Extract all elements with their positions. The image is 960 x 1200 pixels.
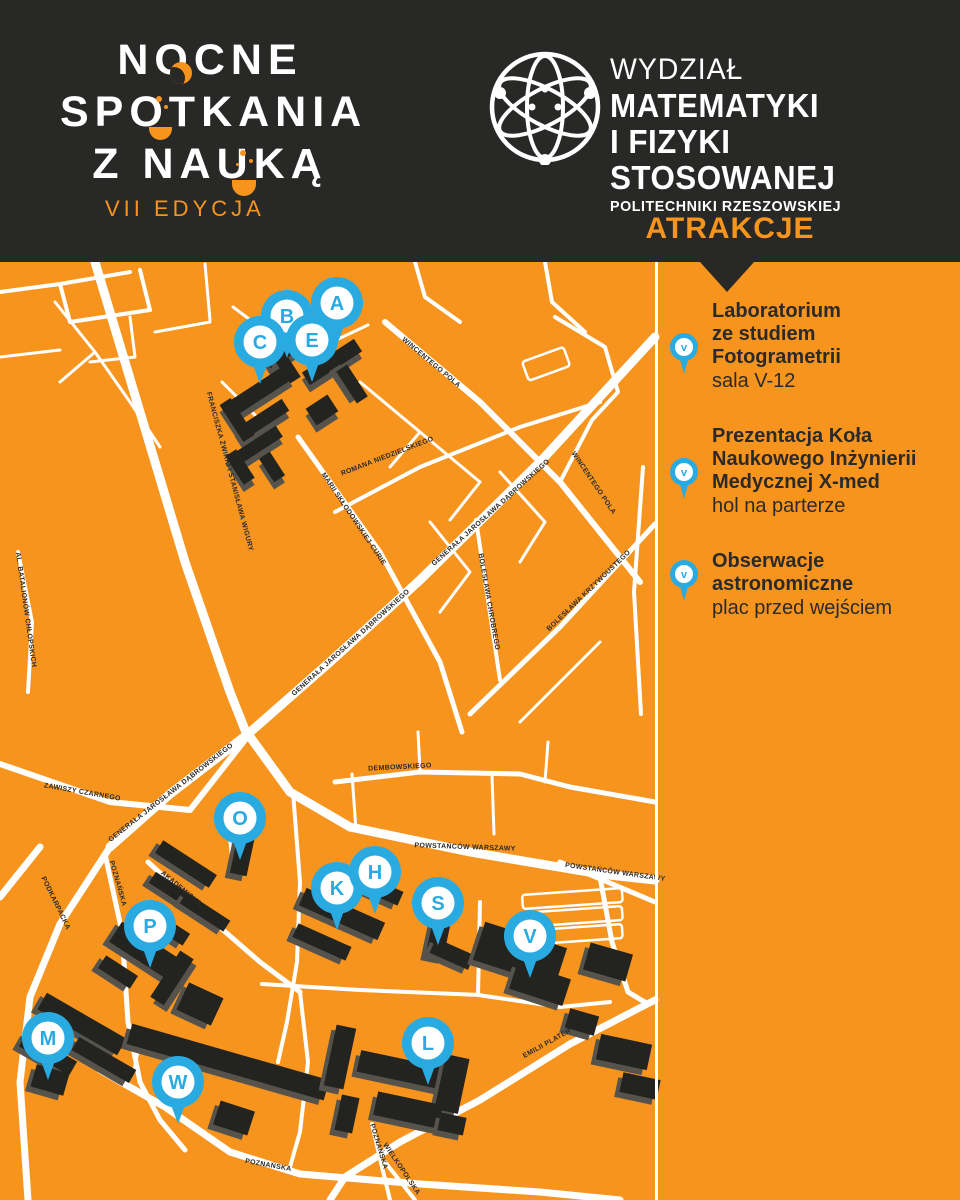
svg-text:v: v [681, 569, 688, 581]
faculty-line-2: MATEMATYKI [610, 88, 943, 124]
edition-label: VII EDYCJA [60, 196, 360, 222]
moon-icon [170, 62, 192, 84]
bubble-icon [156, 96, 162, 102]
attractions-list: v Laboratorium ze studiem Fotogrametrii … [672, 300, 942, 652]
svg-text:P: P [143, 916, 156, 938]
sidebar-divider [655, 262, 658, 1200]
bubble-icon [236, 163, 239, 166]
faculty-line-1: WYDZIAŁ [610, 52, 943, 88]
atom-logo-icon [488, 50, 603, 165]
svg-text:O: O [232, 808, 248, 830]
faculty-wordmark: WYDZIAŁ MATEMATYKI I FIZYKI STOSOWANEJ P… [610, 52, 943, 218]
attraction-title: Medycznej X-med [712, 471, 942, 494]
svg-text:A: A [330, 293, 344, 315]
attraction-title: Prezentacja Koła [712, 425, 942, 448]
map-pin-v-icon: v [668, 559, 700, 614]
attraction-item-obserwacje: v Obserwacje astronomiczne plac przed we… [672, 550, 942, 620]
attraction-item-xmed: v Prezentacja Koła Naukowego Inżynierii … [672, 425, 942, 518]
attraction-title: Fotogrametrii [712, 346, 942, 369]
map-pin-v-icon: v [668, 332, 700, 387]
road [492, 776, 494, 834]
svg-text:V: V [523, 926, 537, 948]
svg-text:E: E [305, 330, 318, 352]
bubble-icon [240, 150, 246, 156]
svg-text:K: K [330, 878, 345, 900]
svg-text:M: M [40, 1028, 57, 1050]
svg-text:C: C [253, 332, 267, 354]
attraction-title: Laboratorium [712, 300, 942, 323]
bubble-icon [164, 105, 168, 109]
faculty-line-3: I FIZYKI STOSOWANEJ [610, 124, 943, 196]
logo-line-2: SPOTKANIA [60, 86, 360, 138]
attraction-title: astronomiczne [712, 573, 942, 596]
logo-line-1: NOCNE [60, 34, 360, 86]
attraction-location: hol na parterze [712, 495, 942, 518]
svg-text:L: L [422, 1033, 434, 1055]
attraction-location: plac przed wejściem [712, 597, 942, 620]
attractions-heading: ATRAKCJE [630, 212, 830, 246]
header: NOCNE SPOTKANIA Z NAUKĄ VII EDYCJA WYDZI… [0, 0, 960, 262]
event-logo: NOCNE SPOTKANIA Z NAUKĄ VII EDYCJA [60, 34, 360, 222]
map-pin-v-icon: v [668, 457, 700, 512]
svg-text:v: v [681, 467, 688, 479]
attraction-title: Naukowego Inżynierii [712, 448, 942, 471]
svg-text:v: v [681, 342, 688, 354]
attraction-title: ze studiem [712, 323, 942, 346]
svg-text:H: H [368, 862, 382, 884]
svg-text:W: W [169, 1072, 188, 1094]
svg-text:S: S [431, 893, 444, 915]
attraction-title: Obserwacje [712, 550, 942, 573]
attraction-location: sala V-12 [712, 370, 942, 393]
attraction-item-fotogrametria: v Laboratorium ze studiem Fotogrametrii … [672, 300, 942, 393]
science-night-map-poster: { "header": { "logo": {"line1":"NOCNE","… [0, 0, 960, 1200]
bubble-icon [249, 159, 253, 163]
logo-line-3: Z NAUKĄ [60, 138, 360, 190]
